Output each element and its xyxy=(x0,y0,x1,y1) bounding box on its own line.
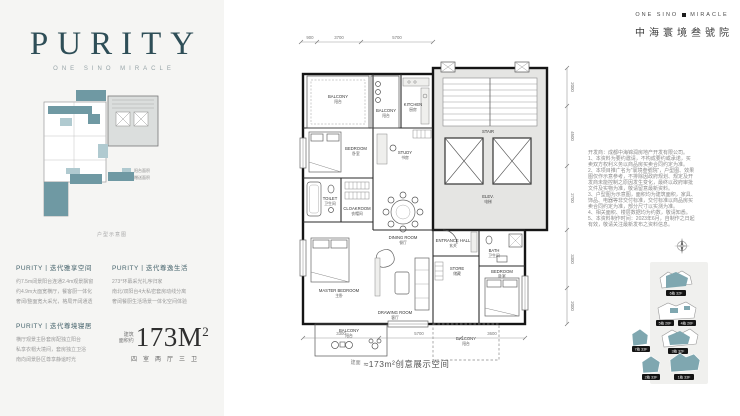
svg-text:4栋 26F: 4栋 26F xyxy=(681,321,695,326)
svg-text:MASTER BEDROOM: MASTER BEDROOM xyxy=(319,288,360,293)
svg-text:餐厅: 餐厅 xyxy=(399,240,407,245)
svg-text:KITCHEN: KITCHEN xyxy=(404,102,422,107)
page-subtitle: ONE SINO MIRACLE xyxy=(0,66,224,72)
section-1-heading: PURITY丨迭代雅享空间 xyxy=(16,262,106,272)
section-1-line: 约7.5m阔景阳台连通2.4m观景飘窗 xyxy=(16,277,106,287)
svg-text:CLOAKROOM: CLOAKROOM xyxy=(343,206,371,211)
toilet: TOILET 卫生间 xyxy=(307,182,338,216)
svg-text:STAIR: STAIR xyxy=(482,129,494,134)
section-3: PURITY丨迭代尊境寝居 横厅观景主卧套房配独立阳台 私享衣帽大境间，套房独立… xyxy=(16,320,108,365)
room-count-label: 四室两厅三卫 xyxy=(108,354,220,363)
svg-text:2000: 2000 xyxy=(570,82,575,92)
svg-text:3700: 3700 xyxy=(334,35,344,40)
section-3-heading: PURITY丨迭代尊境寝居 xyxy=(16,320,108,330)
section-2-line: 273°环幕采光礼序归家 xyxy=(112,277,212,287)
svg-text:3600: 3600 xyxy=(487,331,497,336)
svg-text:5700: 5700 xyxy=(414,331,424,336)
area-figure: 建筑 面积约 173M2 xyxy=(108,322,220,353)
section-2-line: 奢阔餐厨生活场景一体化空间体验 xyxy=(112,297,212,307)
caption-text: ≈173m²创意展示空间 xyxy=(364,358,450,370)
svg-text:7栋 33F: 7栋 33F xyxy=(635,347,649,352)
master-bedroom: MASTER BEDROOM 主卧 xyxy=(311,238,360,298)
svg-text:STORE: STORE xyxy=(450,266,465,271)
brand-block: ONE SINO MIRACLE 中海寰境叁號院 xyxy=(626,12,738,39)
svg-text:2栋 33F: 2栋 33F xyxy=(645,375,659,380)
svg-text:厨房: 厨房 xyxy=(409,107,417,112)
section-2: PURITY丨迭代尊逸生活 273°环幕采光礼序归家 南北/双阳台4大私密套房动… xyxy=(112,262,212,307)
svg-text:主卧: 主卧 xyxy=(335,293,343,298)
svg-text:2700: 2700 xyxy=(570,193,575,203)
bedroom-right: BEDROOM 卧室 xyxy=(485,269,519,316)
svg-text:3300: 3300 xyxy=(570,254,575,264)
svg-text:卫生间: 卫生间 xyxy=(324,201,336,206)
svg-text:BALCONY: BALCONY xyxy=(456,336,476,341)
section-2-heading: PURITY丨迭代尊逸生活 xyxy=(112,262,212,272)
svg-text:2000: 2000 xyxy=(570,301,575,311)
dimension-right: 2000 4500 2700 3300 2000 xyxy=(565,66,575,326)
caption-prefix: 建面 xyxy=(351,361,362,367)
svg-text:3300: 3300 xyxy=(336,331,346,336)
mini-floorplan: 阳台面积 赠送面积 xyxy=(36,84,188,226)
section-1: PURITY丨迭代雅享空间 约7.5m阔景阳台连通2.4m观景飘窗 约4.9m大… xyxy=(16,262,106,307)
svg-text:衣帽间: 衣帽间 xyxy=(351,211,363,216)
area-prefix: 建筑 面积约 xyxy=(119,332,134,344)
section-3-line: 南向阔景卧区尊享静谧时光 xyxy=(16,355,108,365)
poster: PURITY ONE SINO MIRACLE xyxy=(0,0,740,416)
svg-text:BEDROOM: BEDROOM xyxy=(345,146,367,151)
page-title: PURITY xyxy=(0,26,224,63)
svg-text:ENTRANCE HALL: ENTRANCE HALL xyxy=(436,238,471,243)
bath: BATH 卫生间 xyxy=(486,234,522,262)
entrance-hall: ENTRANCE HALL 玄关 xyxy=(436,230,477,252)
dimension-top: 900 3700 5700 xyxy=(299,35,435,44)
svg-text:STUDY: STUDY xyxy=(398,150,412,155)
svg-text:1栋 33F: 1栋 33F xyxy=(678,375,692,380)
balcony-bottom-left: BALCONY 阳台 xyxy=(315,324,387,356)
cloakroom: CLOAKROOM 衣帽间 xyxy=(343,182,371,216)
section-2-line: 南北/双阳台4大私密套房动线分离 xyxy=(112,287,212,297)
brand-square-icon xyxy=(682,13,686,17)
disclaimer-block: 开发商：成都中海锦润房地产开发有限公司。 1、本资料为要约邀请，不构成要约或承诺… xyxy=(588,150,718,228)
svg-text:3栋 32F: 3栋 32F xyxy=(672,349,686,354)
brand-en-right: MIRACLE xyxy=(690,12,728,18)
drawing-room: DRAWING ROOM 客厅 xyxy=(375,249,429,320)
compass-icon xyxy=(674,238,690,254)
area-value: 173M2 xyxy=(136,322,210,353)
svg-text:阳台: 阳台 xyxy=(334,99,342,104)
svg-text:4500: 4500 xyxy=(570,131,575,141)
svg-text:阳台: 阳台 xyxy=(382,113,390,118)
svg-text:DINING ROOM: DINING ROOM xyxy=(389,235,418,240)
legend-label-light: 阳台面积 xyxy=(134,167,150,173)
balcony-top-mid: BALCONY 阳台 xyxy=(371,76,399,128)
svg-text:卧室: 卧室 xyxy=(352,151,360,156)
svg-text:BALCONY: BALCONY xyxy=(376,108,396,113)
svg-text:阳台: 阳台 xyxy=(462,341,470,346)
svg-text:书房: 书房 xyxy=(401,155,409,160)
svg-text:玄关: 玄关 xyxy=(449,243,457,248)
svg-text:ELEV.: ELEV. xyxy=(482,194,494,199)
section-1-line: 约4.9m大面宽横厅，餐客厨一体化 xyxy=(16,287,106,297)
study: STUDY 书房 xyxy=(377,130,431,164)
section-1-line: 奢阔/整面宽大采光，格局开阔通透 xyxy=(16,297,106,307)
balcony-bottom-right: BALCONY 阳台 xyxy=(433,324,499,360)
svg-text:TOILET: TOILET xyxy=(323,196,338,201)
svg-text:储藏: 储藏 xyxy=(453,271,461,276)
mini-core xyxy=(108,96,158,146)
svg-text:5栋 26F: 5栋 26F xyxy=(659,321,673,326)
disclaimer-line: 有效，敬请关注最新发布之资料信息。 xyxy=(588,222,718,228)
svg-text:电梯: 电梯 xyxy=(484,199,492,204)
svg-text:卧室: 卧室 xyxy=(498,274,506,279)
mini-plan-caption: 户型示意图 xyxy=(0,231,224,238)
brand-name-cn: 中海寰境叁號院 xyxy=(626,24,738,39)
section-3-line: 横厅观景主卧套房配独立阳台 xyxy=(16,335,108,345)
svg-text:5700: 5700 xyxy=(392,35,402,40)
balcony-top-left: BALCONY 阳台 xyxy=(307,76,369,128)
store: STORE 储藏 xyxy=(435,262,464,280)
plan-caption: 建面 ≈173m²创意展示空间 xyxy=(290,358,510,370)
svg-text:BEDROOM: BEDROOM xyxy=(491,269,513,274)
brand-en-left: ONE SINO xyxy=(635,12,678,18)
kitchen: KITCHEN 厨房 xyxy=(403,78,429,124)
svg-text:阳台: 阳台 xyxy=(345,333,353,338)
svg-text:900: 900 xyxy=(306,35,314,40)
bedroom-upper-left: BEDROOM 卧室 xyxy=(309,132,367,172)
main-floorplan: 900 3700 5700 STAIR ELEV. 电梯 xyxy=(283,26,585,368)
site-building: 7栋 33F xyxy=(632,329,650,352)
dining-room: DINING ROOM 餐厅 xyxy=(383,192,423,245)
section-3-line: 私享衣帽大境间，套房独立卫浴 xyxy=(16,345,108,355)
svg-text:BATH: BATH xyxy=(489,248,500,253)
svg-text:6栋 32F: 6栋 32F xyxy=(670,291,684,296)
dimension-bottom: 3300 5700 3600 xyxy=(301,331,527,340)
site-plan: 6栋 32F 5栋 26F 4栋 26F 3栋 32F 7栋 33F xyxy=(630,256,740,392)
svg-text:DRAWING ROOM: DRAWING ROOM xyxy=(378,310,413,315)
legend-label-dark: 赠送面积 xyxy=(134,174,150,180)
svg-text:客厅: 客厅 xyxy=(391,315,399,320)
svg-text:BALCONY: BALCONY xyxy=(328,94,348,99)
svg-text:卫生间: 卫生间 xyxy=(488,253,500,258)
